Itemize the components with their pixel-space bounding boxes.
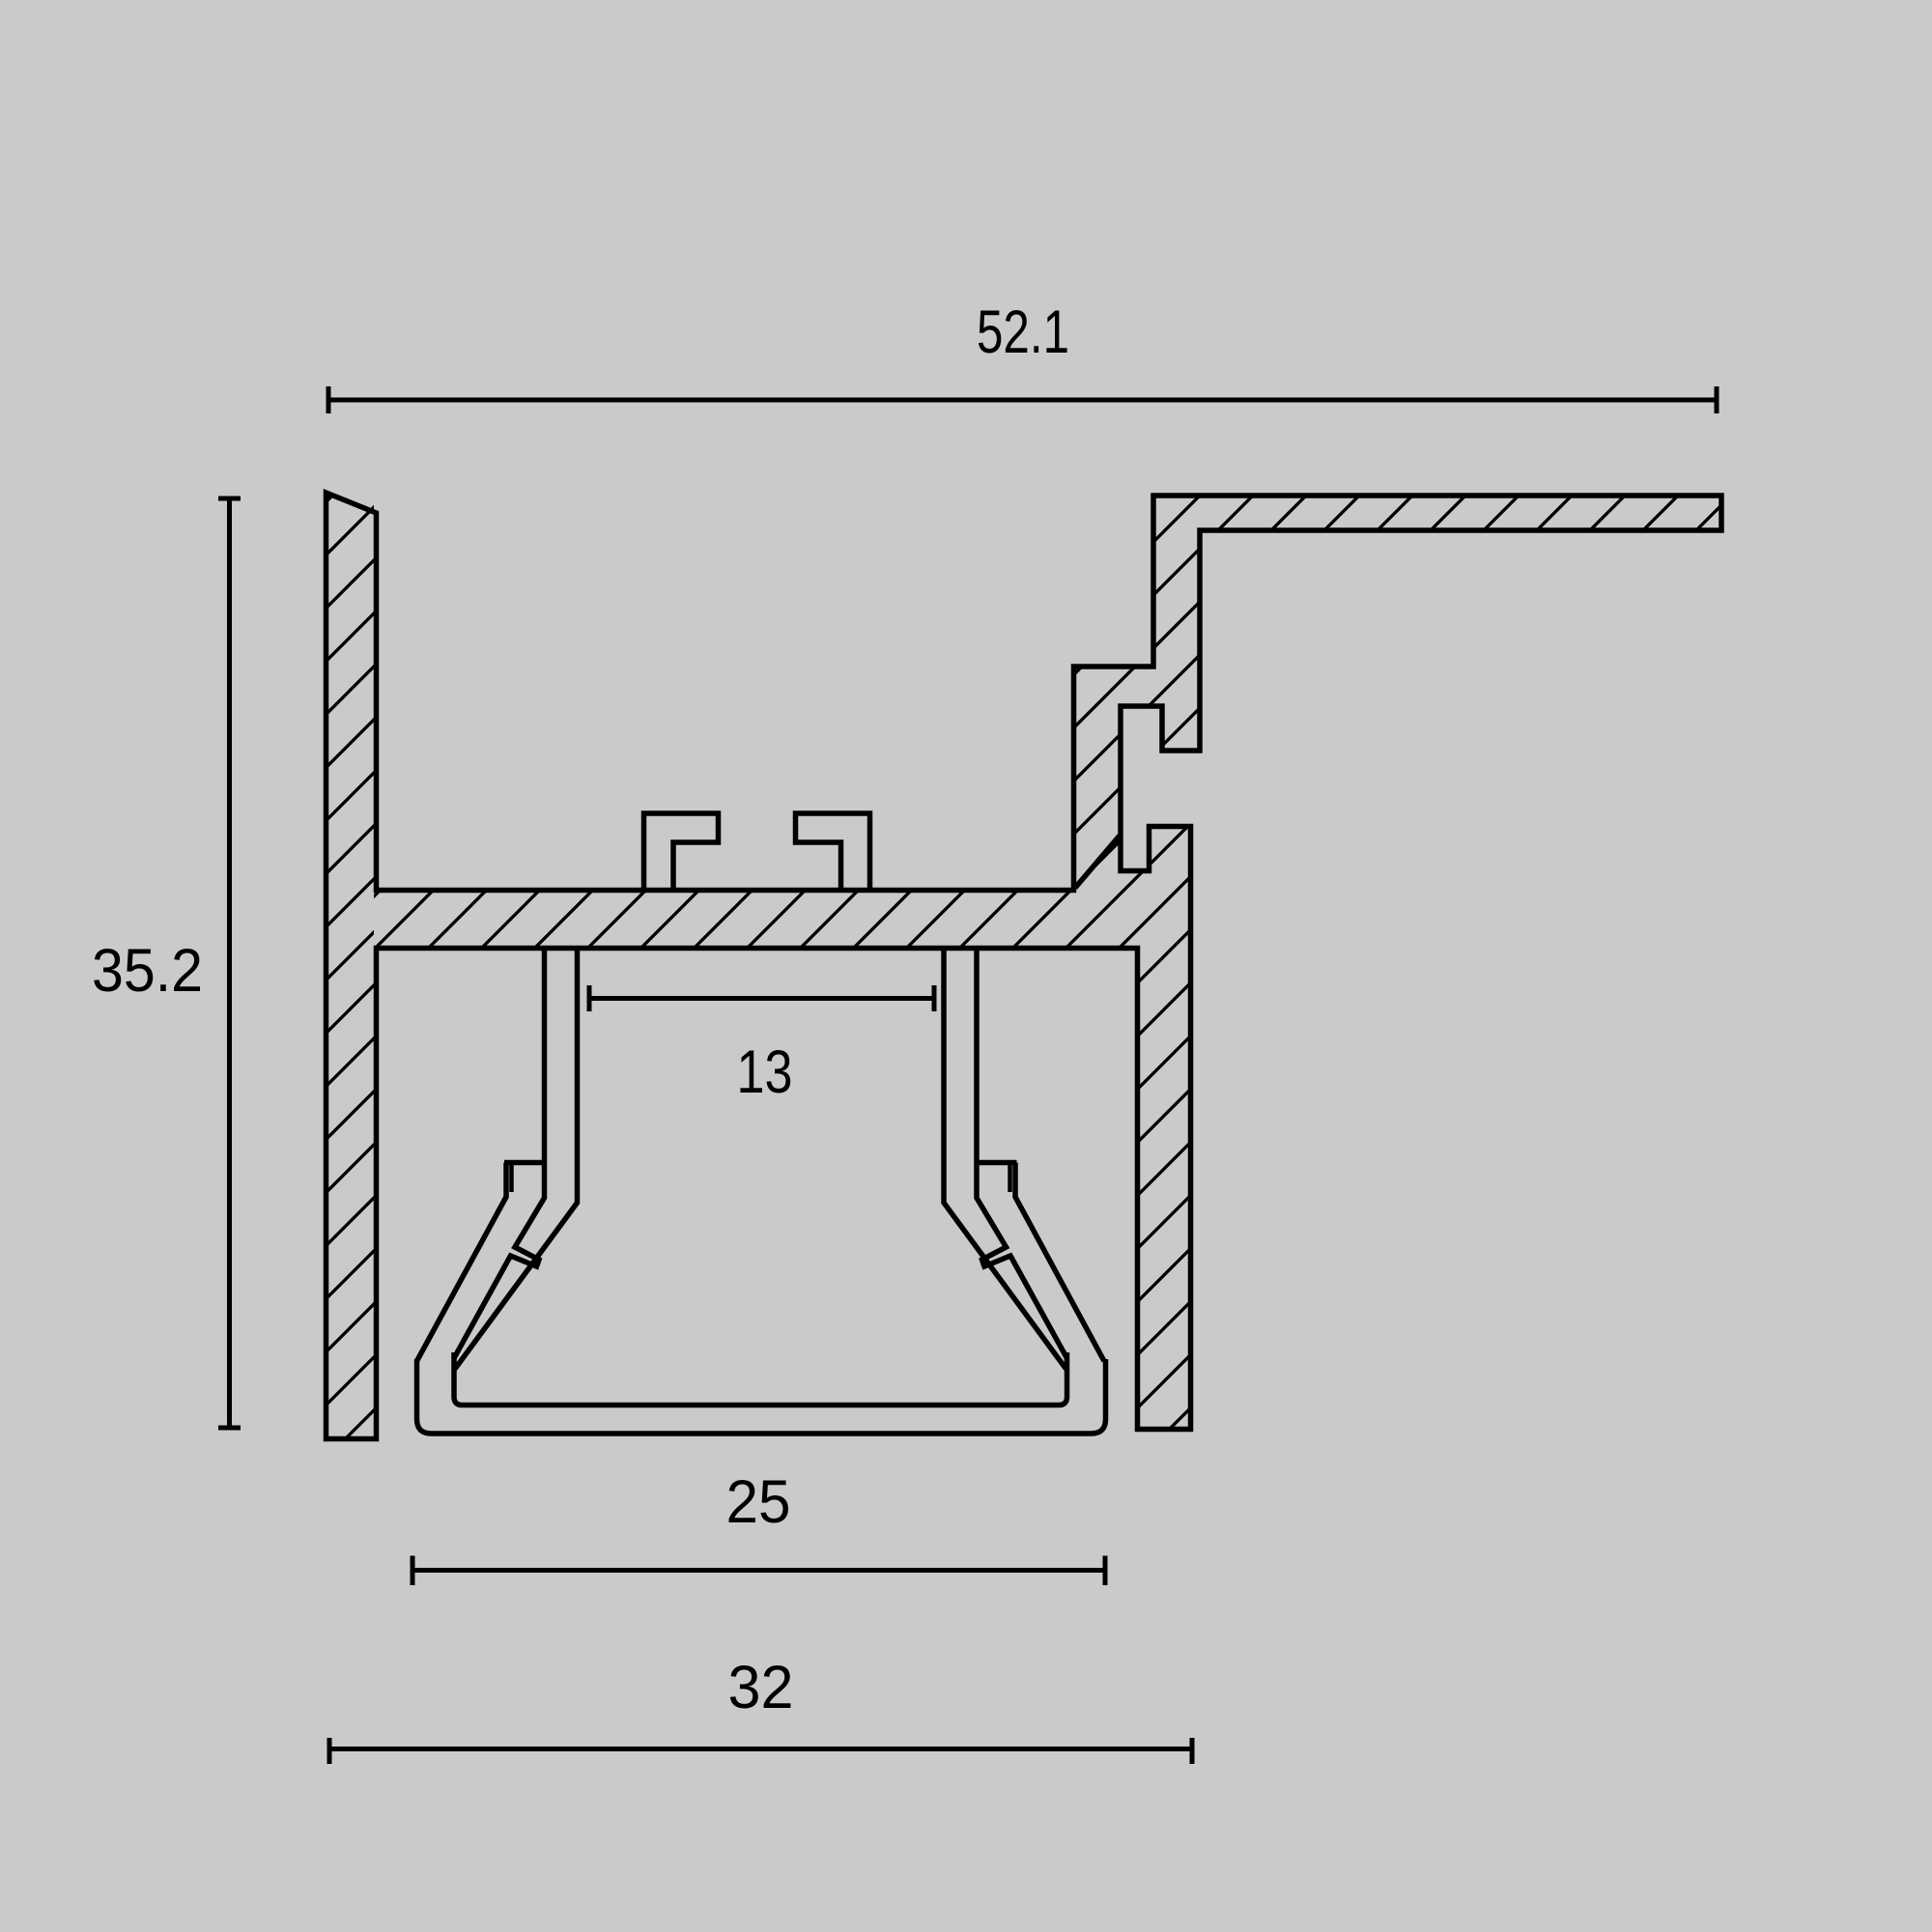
svg-text:35.2: 35.2 — [92, 937, 203, 1005]
svg-text:32: 32 — [728, 1654, 794, 1721]
svg-text:13: 13 — [737, 1038, 793, 1106]
svg-text:52.1: 52.1 — [977, 298, 1069, 366]
svg-text:25: 25 — [726, 1468, 791, 1536]
